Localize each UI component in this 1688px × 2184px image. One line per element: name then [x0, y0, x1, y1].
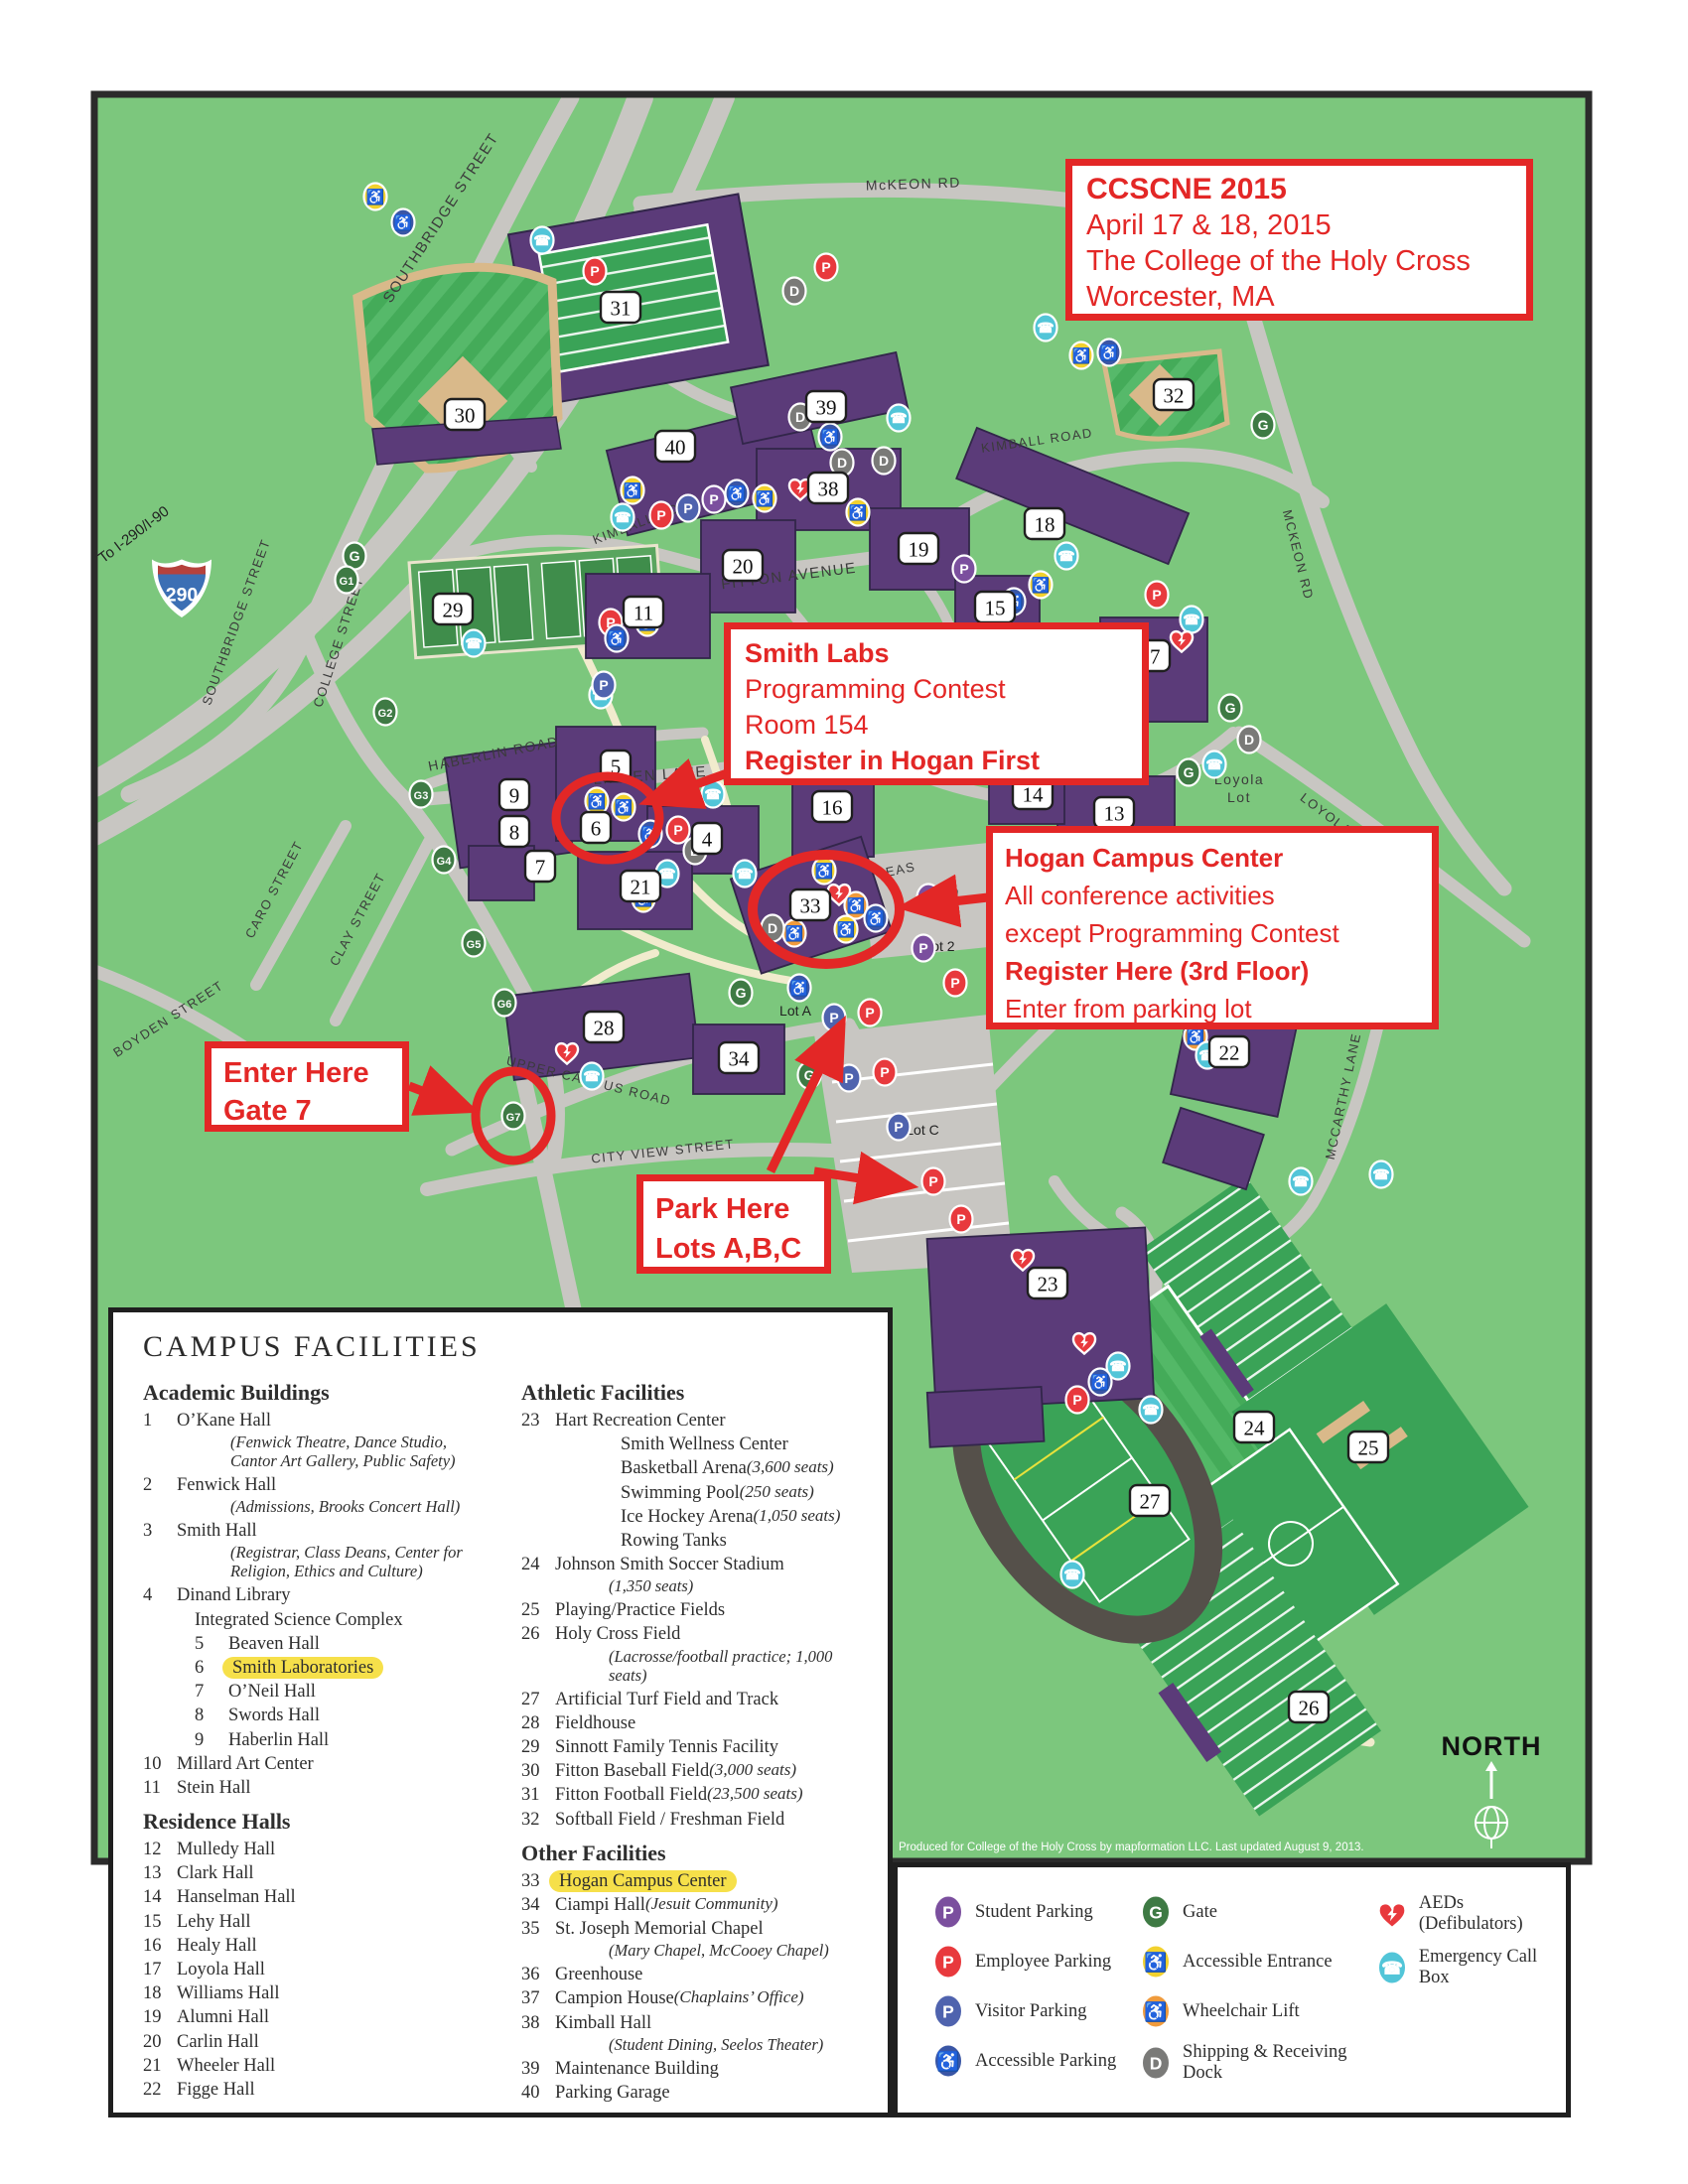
icon-legend-label: Visitor Parking: [975, 2001, 1086, 2022]
emergency-call-box-icon: ☎: [1370, 1161, 1393, 1188]
svg-text:♿: ♿: [1144, 1952, 1167, 1974]
conference-title: CCSCNE 2015: [1086, 172, 1512, 207]
building-number-20: 20: [723, 550, 763, 581]
shipping-receiving-dock-icon: D: [783, 278, 806, 305]
facility-item: 40Parking Garage: [521, 2082, 862, 2104]
building-number-30: 30: [445, 399, 485, 430]
accessible-entrance-icon: ♿: [754, 485, 776, 512]
svg-text:G2: G2: [378, 708, 393, 720]
accessible-parking-icon: ♿: [726, 480, 749, 507]
svg-text:P: P: [950, 975, 959, 991]
svg-text:♿: ♿: [849, 504, 868, 522]
street-label: McKEON RD: [866, 174, 961, 193]
svg-text:D: D: [1150, 2053, 1163, 2073]
gate-icon: G: [1178, 759, 1200, 786]
hogan-line3: Register Here (3rd Floor): [1005, 952, 1420, 990]
employee-parking-icon: P: [859, 1000, 882, 1026]
emergency-call-box-icon: ☎: [1290, 1168, 1313, 1195]
student-parking-icon: P: [913, 935, 935, 962]
visitor-parking-icon: P: [838, 1065, 861, 1092]
building-number-32: 32: [1154, 379, 1194, 410]
hogan-title: Hogan Campus Center: [1005, 839, 1420, 877]
svg-text:♿: ♿: [1100, 344, 1119, 362]
icon-legend-label: Emergency Call Box: [1419, 1947, 1556, 1988]
visitor-parking-icon: P: [677, 495, 700, 522]
svg-text:P: P: [959, 561, 968, 577]
lot-label: Lot A: [779, 1003, 812, 1019]
svg-text:P: P: [821, 259, 830, 275]
icon-legend-label: Accessible Parking: [975, 2051, 1116, 2072]
park-here-callout: Park Here Lots A,B,C: [636, 1174, 831, 1274]
facility-item-detail: (Lacrosse/football practice; 1,000 seats…: [609, 1648, 862, 1686]
building-number-27: 27: [1130, 1485, 1170, 1516]
icon-legend-column: AEDs (Defibulators)☎Emergency Call Box: [1375, 1893, 1556, 2103]
accessible-entrance-icon: ♿: [1070, 342, 1093, 369]
accessible-parking-icon: ♿: [819, 424, 842, 451]
gate-icon: G6: [493, 990, 516, 1017]
conference-info-box: CCSCNE 2015 April 17 & 18, 2015 The Coll…: [1065, 159, 1533, 321]
facility-item: 5Beaven Hall: [143, 1633, 495, 1655]
svg-text:☎: ☎: [1057, 548, 1074, 564]
accessible-entrance-icon: ♿: [586, 788, 609, 815]
svg-text:P: P: [683, 500, 692, 516]
employee-parking-icon: P: [934, 1945, 963, 1979]
icon-legend-row: PStudent Parking: [931, 1893, 1139, 1931]
wheelchair-lift-icon: ♿: [783, 920, 806, 947]
icon-legend-label: Student Parking: [975, 1902, 1093, 1923]
icon-legend-label: AEDs (Defibulators): [1419, 1893, 1556, 1935]
icon-legend-row: ☎Emergency Call Box: [1375, 1947, 1556, 1988]
svg-text:P: P: [942, 1902, 954, 1922]
facility-item: Ice Hockey Arena (1,050 seats): [621, 1506, 862, 1528]
smith-labs-callout: Smith Labs Programming Contest Room 154 …: [724, 622, 1149, 785]
svg-text:P: P: [894, 1119, 903, 1135]
facility-item: 16Healy Hall: [143, 1935, 495, 1957]
svg-text:G7: G7: [506, 1112, 521, 1124]
svg-text:☎: ☎: [1183, 612, 1199, 627]
facility-item: 12Mulledy Hall: [143, 1839, 495, 1860]
credit-line: Produced for College of the Holy Cross b…: [899, 1842, 1364, 1853]
facility-item: 21Wheeler Hall: [143, 2055, 495, 2077]
building-number-33: 33: [790, 889, 830, 920]
svg-text:19: 19: [909, 538, 929, 562]
accessible-entrance-icon: ♿: [847, 499, 870, 526]
svg-text:G: G: [1149, 1902, 1163, 1922]
emergency-call-box-icon: ☎: [1140, 1397, 1163, 1424]
facility-item-detail: (Student Dining, Seelos Theater): [609, 2036, 862, 2055]
svg-text:☎: ☎: [1292, 1173, 1309, 1189]
gate-icon: G2: [374, 699, 397, 726]
student-parking-icon: P: [703, 486, 726, 513]
gate-icon: G5: [463, 930, 486, 957]
emergency-call-box-icon: ☎: [1377, 1951, 1406, 1984]
building-number-9: 9: [499, 779, 529, 810]
shipping-receiving-dock-icon: D: [873, 448, 896, 475]
facilities-section-heading: Residence Halls: [143, 1809, 495, 1835]
emergency-call-box-icon: ☎: [531, 227, 554, 254]
svg-text:D: D: [789, 283, 799, 299]
svg-text:7: 7: [535, 856, 546, 880]
building-number-13: 13: [1094, 797, 1134, 828]
gate-icon: G: [1252, 412, 1275, 439]
svg-text:P: P: [673, 822, 682, 838]
emergency-call-box-icon: ☎: [1203, 751, 1226, 778]
facility-item: 24Johnson Smith Soccer Stadium: [521, 1554, 862, 1575]
smith-line3: Register in Hogan First: [745, 743, 1128, 778]
facility-item: 4Dinand Library: [143, 1584, 495, 1606]
accessible-entrance-icon: ♿: [835, 916, 858, 943]
svg-text:♿: ♿: [366, 189, 385, 206]
svg-text:P: P: [829, 1010, 838, 1025]
building-number-8: 8: [499, 816, 529, 847]
facilities-section-heading: Academic Buildings: [143, 1380, 495, 1406]
svg-text:G1: G1: [340, 576, 354, 588]
icon-legend-panel: PStudent ParkingPEmployee ParkingPVisito…: [893, 1862, 1571, 2117]
svg-text:27: 27: [1140, 1490, 1161, 1514]
accessible-parking-icon: ♿: [1089, 1369, 1112, 1396]
icon-legend-row: GGate: [1139, 1893, 1375, 1931]
svg-text:P: P: [918, 940, 927, 956]
campus-facilities-panel: CAMPUS FACILITIES Academic Buildings1O’K…: [108, 1307, 893, 2117]
smith-title: Smith Labs: [745, 635, 1128, 671]
facility-item: 14Hanselman Hall: [143, 1886, 495, 1908]
svg-text:24: 24: [1244, 1417, 1266, 1440]
building-number-26: 26: [1289, 1692, 1329, 1722]
svg-text:G6: G6: [497, 999, 512, 1011]
gate-icon: G7: [502, 1103, 525, 1130]
aed-icon: [1378, 1903, 1406, 1929]
svg-text:G3: G3: [414, 790, 429, 802]
svg-text:6: 6: [591, 817, 602, 841]
svg-text:290: 290: [166, 585, 199, 607]
svg-text:♿: ♿: [1072, 347, 1091, 365]
facility-item: 29Sinnott Family Tennis Facility: [521, 1736, 862, 1758]
svg-text:♿: ♿: [790, 980, 809, 998]
emergency-call-box-icon: ☎: [888, 405, 911, 432]
gate-icon: G: [1219, 695, 1242, 722]
building-number-22: 22: [1209, 1036, 1249, 1067]
conference-org: The College of the Holy Cross: [1086, 243, 1512, 279]
park-line1: Park Here: [655, 1189, 812, 1229]
svg-text:P: P: [880, 1064, 889, 1080]
icon-legend-row: ♿Accessible Parking: [931, 2042, 1139, 2080]
icon-legend-column: PStudent ParkingPEmployee ParkingPVisito…: [931, 1893, 1139, 2103]
svg-text:D: D: [879, 453, 889, 469]
svg-text:♿: ♿: [615, 799, 633, 817]
svg-text:18: 18: [1035, 513, 1055, 537]
shipping-receiving-dock-icon: D: [1238, 727, 1261, 753]
facility-item-detail: (1,350 seats): [609, 1577, 862, 1596]
facility-item: 30Fitton Baseball Field (3,000 seats): [521, 1760, 862, 1782]
svg-text:D: D: [1244, 732, 1254, 748]
svg-text:♿: ♿: [936, 2051, 959, 2073]
facility-item: 15Lehy Hall: [143, 1911, 495, 1933]
svg-text:15: 15: [985, 597, 1006, 620]
gate-icon: G4: [433, 847, 456, 874]
employee-parking-icon: P: [944, 970, 967, 997]
accessible-entrance-icon: ♿: [622, 478, 644, 504]
svg-text:P: P: [590, 263, 599, 279]
employee-parking-icon: P: [1146, 582, 1169, 609]
icon-legend-row: ♿Wheelchair Lift: [1139, 1992, 1375, 2030]
icon-legend-row: PEmployee Parking: [931, 1943, 1139, 1980]
svg-text:13: 13: [1104, 802, 1125, 826]
enter-here-callout: Enter Here Gate 7: [205, 1041, 409, 1132]
building-number-23: 23: [1028, 1268, 1067, 1298]
facility-item: Smith Wellness Center: [621, 1433, 862, 1455]
facility-item: 2Fenwick Hall: [143, 1474, 495, 1496]
emergency-call-box-icon: ☎: [734, 861, 757, 887]
hogan-line2: except Programming Contest: [1005, 914, 1420, 952]
emergency-call-box-icon: ☎: [1035, 315, 1057, 341]
svg-text:8: 8: [509, 821, 520, 845]
accessible-entrance-icon: ♿: [613, 794, 635, 821]
svg-text:♿: ♿: [608, 630, 627, 648]
svg-text:20: 20: [733, 555, 754, 579]
facility-item-detail: (Fenwick Theatre, Dance Studio, Cantor A…: [230, 1433, 495, 1471]
accessible-parking-icon: ♿: [1098, 340, 1121, 366]
icon-legend-column: GGate♿Accessible Entrance♿Wheelchair Lif…: [1139, 1893, 1375, 2103]
gate-icon: G: [730, 980, 753, 1007]
svg-text:☎: ☎: [533, 232, 550, 248]
facility-item: 10Millard Art Center: [143, 1753, 495, 1775]
svg-text:♿: ♿: [837, 921, 856, 939]
facilities-section-heading: Other Facilities: [521, 1841, 862, 1866]
svg-text:☎: ☎: [890, 410, 907, 426]
svg-text:28: 28: [594, 1017, 615, 1040]
building-number-6: 6: [581, 812, 611, 843]
icon-legend-label: Shipping & Receiving Dock: [1183, 2042, 1375, 2084]
student-parking-icon: P: [953, 556, 976, 583]
emergency-call-box-icon: ☎: [463, 630, 486, 657]
svg-text:♿: ♿: [588, 793, 607, 811]
icon-legend-row: PVisitor Parking: [931, 1992, 1139, 2030]
facility-item-detail: (Mary Chapel, McCooey Chapel): [609, 1942, 862, 1961]
svg-text:D: D: [837, 455, 847, 471]
building-number-15: 15: [975, 592, 1015, 622]
svg-text:♿: ♿: [394, 214, 413, 232]
employee-parking-icon: P: [650, 502, 673, 529]
svg-text:☎: ☎: [1142, 1402, 1159, 1418]
svg-text:P: P: [942, 1952, 954, 1972]
facility-item: 35St. Joseph Memorial Chapel: [521, 1918, 862, 1940]
svg-text:23: 23: [1038, 1273, 1058, 1297]
employee-parking-icon: P: [922, 1168, 945, 1195]
facility-item: Basketball Arena (3,600 seats): [621, 1457, 862, 1479]
emergency-call-box-icon: ☎: [1055, 543, 1078, 570]
icon-legend-row: AEDs (Defibulators): [1375, 1893, 1556, 1935]
facility-item: 39Maintenance Building: [521, 2058, 862, 2080]
svg-text:21: 21: [631, 876, 651, 899]
svg-text:9: 9: [509, 784, 520, 808]
icon-legend-label: Accessible Entrance: [1183, 1952, 1333, 1973]
facility-item-detail: (Admissions, Brooks Concert Hall): [230, 1498, 495, 1517]
svg-text:♿: ♿: [624, 482, 642, 500]
wheelchair-lift-icon: ♿: [1142, 1994, 1171, 2028]
accessible-parking-icon: ♿: [788, 975, 811, 1002]
employee-parking-icon: P: [815, 254, 838, 281]
accessible-entrance-icon: ♿: [813, 858, 836, 885]
building-number-25: 25: [1348, 1432, 1388, 1462]
svg-text:♿: ♿: [756, 490, 774, 508]
svg-text:♿: ♿: [1032, 577, 1051, 595]
facility-item: 3Smith Hall: [143, 1520, 495, 1542]
svg-text:♿: ♿: [728, 485, 747, 503]
accessible-parking-icon: ♿: [934, 2044, 963, 2078]
facility-item-detail: (Registrar, Class Deans, Center for Reli…: [230, 1544, 495, 1581]
facility-item: Swimming Pool (250 seats): [621, 1482, 862, 1504]
svg-text:G: G: [1258, 417, 1269, 433]
conference-city: Worcester, MA: [1086, 279, 1512, 315]
hogan-line1: All conference activities: [1005, 877, 1420, 914]
hogan-line4: Enter from parking lot: [1005, 990, 1420, 1027]
svg-text:22: 22: [1219, 1041, 1240, 1065]
svg-text:♿: ♿: [867, 910, 886, 928]
visitor-parking-icon: P: [888, 1114, 911, 1141]
svg-text:☎: ☎: [614, 509, 631, 525]
facility-item: 8Swords Hall: [143, 1705, 495, 1726]
svg-text:G: G: [736, 985, 747, 1001]
facility-item: 32Softball Field / Freshman Field: [521, 1809, 862, 1831]
building-number-7: 7: [525, 851, 555, 882]
svg-text:☎: ☎: [1037, 320, 1054, 336]
facility-item: 31Fitton Football Field (23,500 seats): [521, 1784, 862, 1806]
building-number-4: 4: [692, 823, 722, 854]
svg-text:☎: ☎: [1205, 756, 1222, 772]
gate-icon: G1: [336, 567, 358, 594]
svg-text:38: 38: [818, 478, 839, 501]
employee-parking-icon: P: [874, 1059, 897, 1086]
facility-item: 19Alumni Hall: [143, 2006, 495, 2028]
svg-text:33: 33: [800, 894, 821, 918]
svg-text:11: 11: [633, 602, 653, 625]
svg-text:16: 16: [822, 796, 843, 820]
emergency-call-box-icon: ☎: [581, 1063, 604, 1090]
shipping-receiving-dock-icon: D: [1142, 2046, 1171, 2080]
svg-text:♿: ♿: [847, 897, 866, 915]
building-number-11: 11: [624, 597, 663, 627]
accessible-parking-icon: ♿: [606, 625, 629, 652]
facility-item: 6Smith Laboratories: [143, 1657, 495, 1679]
employee-parking-icon: P: [584, 258, 607, 285]
emergency-call-box-icon: ☎: [612, 504, 634, 531]
svg-text:14: 14: [1023, 783, 1045, 807]
facility-item: 9Haberlin Hall: [143, 1729, 495, 1751]
svg-text:G: G: [1225, 700, 1236, 716]
accessible-parking-icon: ♿: [865, 905, 888, 932]
facility-item: 38Kimball Hall: [521, 2012, 862, 2034]
svg-text:31: 31: [611, 297, 632, 321]
svg-text:♿: ♿: [1091, 1374, 1110, 1392]
facility-item: 20Carlin Hall: [143, 2031, 495, 2053]
facilities-title: CAMPUS FACILITIES: [143, 1330, 862, 1364]
svg-text:P: P: [865, 1005, 874, 1021]
emergency-call-box-icon: ☎: [1061, 1562, 1084, 1588]
svg-text:P: P: [1152, 587, 1161, 603]
facility-item: 37Campion House (Chaplains’ Office): [521, 1987, 862, 2009]
facility-item: 23Hart Recreation Center: [521, 1410, 862, 1432]
svg-text:☎: ☎: [1381, 1958, 1403, 1978]
svg-text:☎: ☎: [736, 866, 753, 882]
facility-item: Integrated Science Complex: [143, 1609, 495, 1631]
svg-text:P: P: [1072, 1392, 1081, 1408]
facility-item: Rowing Tanks: [621, 1530, 862, 1552]
icon-legend-row: ♿Accessible Entrance: [1139, 1943, 1375, 1980]
svg-text:4: 4: [702, 828, 713, 852]
accessible-parking-icon: ♿: [392, 209, 415, 236]
emergency-call-box-icon: ☎: [1181, 607, 1203, 633]
employee-parking-icon: P: [950, 1206, 973, 1233]
visitor-parking-icon: P: [823, 1005, 846, 1031]
svg-text:G4: G4: [437, 856, 453, 868]
svg-text:☎: ☎: [1063, 1567, 1080, 1582]
svg-text:P: P: [656, 507, 665, 523]
building-number-16: 16: [812, 791, 852, 822]
employee-parking-icon: P: [667, 817, 690, 844]
svg-text:G5: G5: [467, 939, 482, 951]
facilities-column-1: Academic Buildings1O’Kane Hall(Fenwick T…: [143, 1370, 495, 2106]
building-number-39: 39: [806, 391, 846, 422]
facility-item: 25Playing/Practice Fields: [521, 1599, 862, 1621]
svg-text:32: 32: [1164, 384, 1185, 408]
svg-text:G: G: [1184, 764, 1195, 780]
svg-text:D: D: [768, 920, 777, 936]
visitor-parking-icon: P: [934, 1994, 963, 2028]
employee-parking-icon: P: [1066, 1387, 1089, 1414]
svg-text:29: 29: [443, 599, 464, 622]
facility-item: 28Fieldhouse: [521, 1712, 862, 1734]
street-label: Lot: [1227, 789, 1251, 805]
facility-item: 1O’Kane Hall: [143, 1410, 495, 1432]
gate-icon: G: [1142, 1895, 1171, 1929]
building-number-21: 21: [621, 871, 660, 901]
building-number-19: 19: [899, 533, 938, 564]
facility-item: 18Williams Hall: [143, 1982, 495, 2004]
building-number-29: 29: [433, 594, 473, 624]
facility-item: 27Artificial Turf Field and Track: [521, 1689, 862, 1710]
accessible-entrance-icon: ♿: [1142, 1945, 1171, 1979]
building-number-18: 18: [1025, 508, 1064, 539]
facility-item: 7O’Neil Hall: [143, 1681, 495, 1703]
facility-item: 17Loyola Hall: [143, 1959, 495, 1980]
visitor-parking-icon: P: [593, 672, 616, 699]
conference-dates: April 17 & 18, 2015: [1086, 207, 1512, 243]
campus-map-page: SOUTHBRIDGE STREETSOUTHBRIDGE STREETCOLL…: [0, 0, 1688, 2184]
svg-text:39: 39: [816, 396, 837, 420]
svg-text:♿: ♿: [1144, 2001, 1167, 2023]
svg-text:☎: ☎: [1109, 1358, 1126, 1374]
svg-text:P: P: [928, 1173, 937, 1189]
smith-line2: Room 154: [745, 707, 1128, 743]
svg-text:34: 34: [729, 1047, 751, 1071]
building-number-28: 28: [584, 1012, 624, 1042]
smith-line1: Programming Contest: [745, 671, 1128, 707]
svg-text:P: P: [599, 677, 608, 693]
icon-legend-label: Gate: [1183, 1902, 1217, 1923]
svg-text:D: D: [795, 409, 805, 425]
enter-line1: Enter Here: [223, 1054, 390, 1092]
svg-text:♿: ♿: [785, 925, 804, 943]
svg-text:♿: ♿: [821, 429, 840, 447]
student-parking-icon: P: [934, 1895, 963, 1929]
svg-text:P: P: [709, 491, 718, 507]
svg-text:☎: ☎: [465, 635, 482, 651]
park-line2: Lots A,B,C: [655, 1229, 812, 1269]
svg-text:☎: ☎: [704, 786, 721, 802]
building-number-24: 24: [1234, 1412, 1274, 1442]
svg-text:P: P: [844, 1070, 853, 1086]
icon-legend-row: DShipping & Receiving Dock: [1139, 2042, 1375, 2084]
